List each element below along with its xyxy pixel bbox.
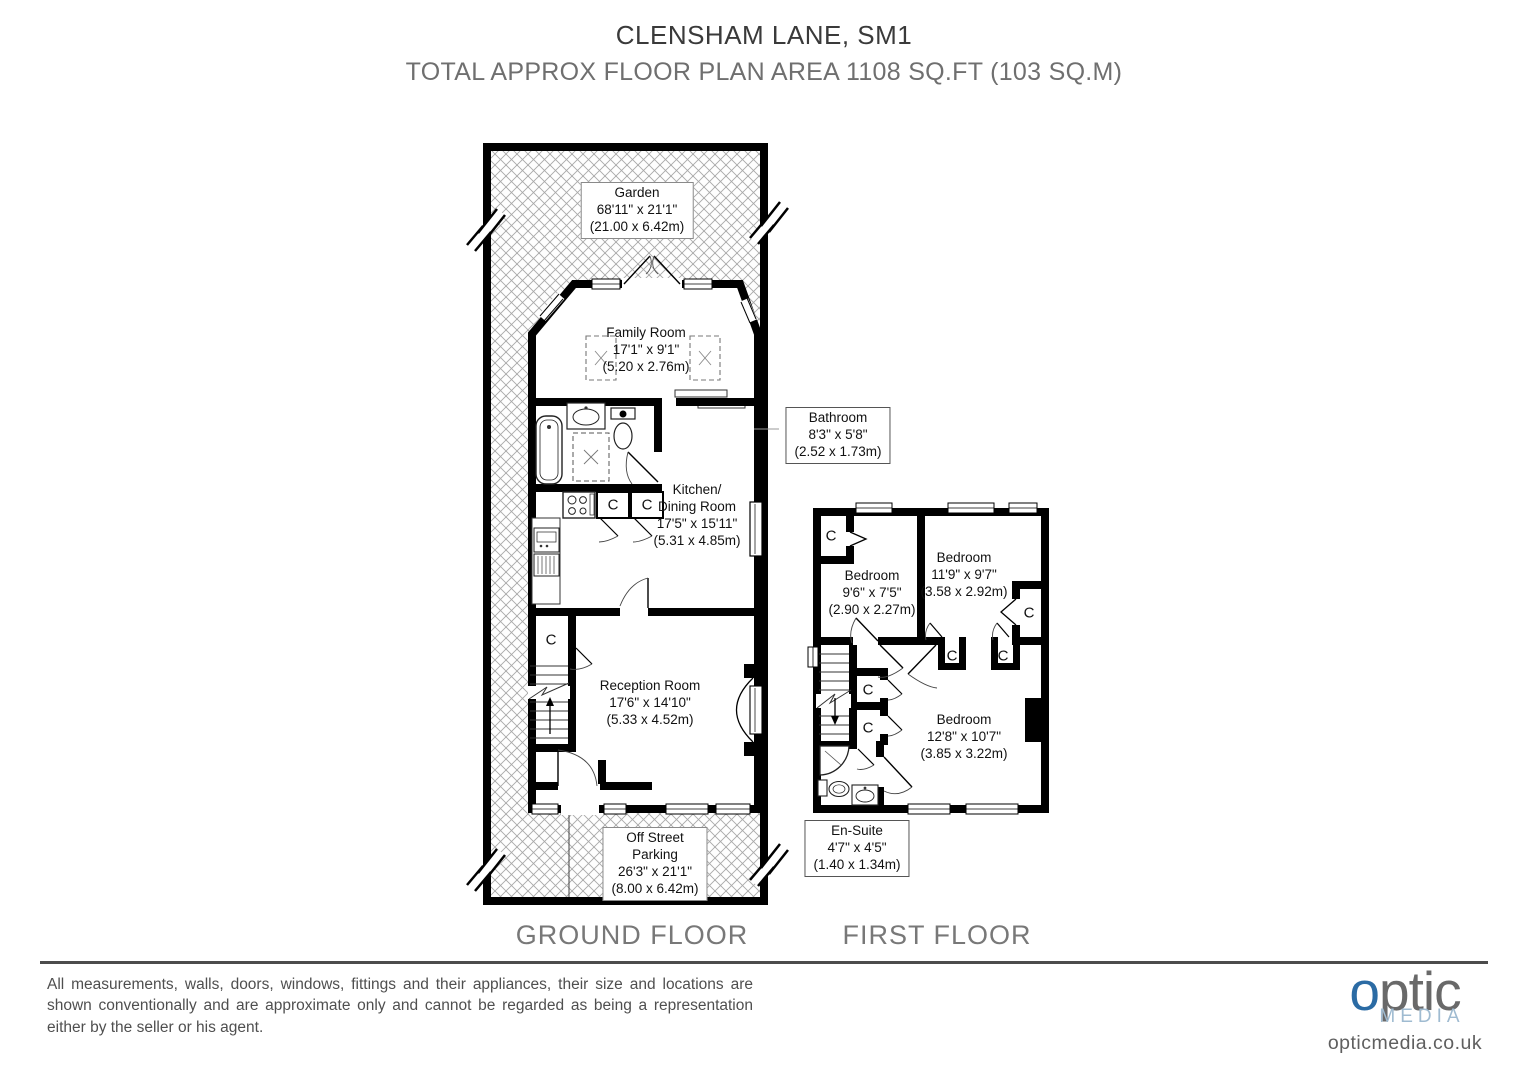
closet-label: C [642,497,653,514]
closet-label: C [947,648,958,665]
reception-room-label: Reception Room 17'6" x 14'10" (5.33 x 4.… [600,678,701,729]
parking-label: Off Street Parking 26'3" x 21'1" (8.00 x… [602,827,707,901]
bedroom-small-label: Bedroom 9'6" x 7'5" (2.90 x 2.27m) [828,568,915,619]
optic-media-logo: optic MEDIA opticmedia.co.uk [1322,964,1488,1054]
page-title: CLENSHAM LANE, SM1 [0,20,1528,51]
floor-plan-drawing [0,0,1528,1080]
closet-label: C [863,720,874,737]
bathroom-label: Bathroom 8'3" x 5'8" (2.52 x 1.73m) [785,407,890,464]
ground-floor-caption: GROUND FLOOR [516,920,749,951]
closet-label: C [1024,605,1035,622]
ensuite-label: En-Suite 4'7" x 4'5" (1.40 x 1.34m) [804,820,909,877]
floorplan-page: CLENSHAM LANE, SM1 TOTAL APPROX FLOOR PL… [0,0,1528,1080]
kitchen-dining-label: Kitchen/ Dining Room 17'5" x 15'11" (5.3… [653,482,740,550]
closet-label: C [863,682,874,699]
closet-label: C [608,497,619,514]
family-room-label: Family Room 17'1" x 9'1" (5.20 x 2.76m) [602,325,689,376]
footer-divider [40,961,1488,964]
closet-label: C [998,648,1009,665]
closet-label: C [826,528,837,545]
disclaimer-text: All measurements, walls, doors, windows,… [47,974,753,1038]
logo-brand-o: o [1349,960,1379,1022]
logo-website: opticmedia.co.uk [1322,1034,1488,1054]
garden-label: Garden 68'11" x 21'1" (21.00 x 6.42m) [581,182,694,239]
bedroom-large-label: Bedroom 12'8" x 10'7" (3.85 x 3.22m) [920,712,1007,763]
logo-media-text: MEDIA [1322,1007,1488,1026]
bedroom-mid-label: Bedroom 11'9" x 9'7" (3.58 x 2.92m) [920,550,1007,601]
page-subtitle: TOTAL APPROX FLOOR PLAN AREA 1108 SQ.FT … [0,58,1528,87]
first-floor-caption: FIRST FLOOR [842,920,1031,951]
closet-label: C [546,632,557,649]
